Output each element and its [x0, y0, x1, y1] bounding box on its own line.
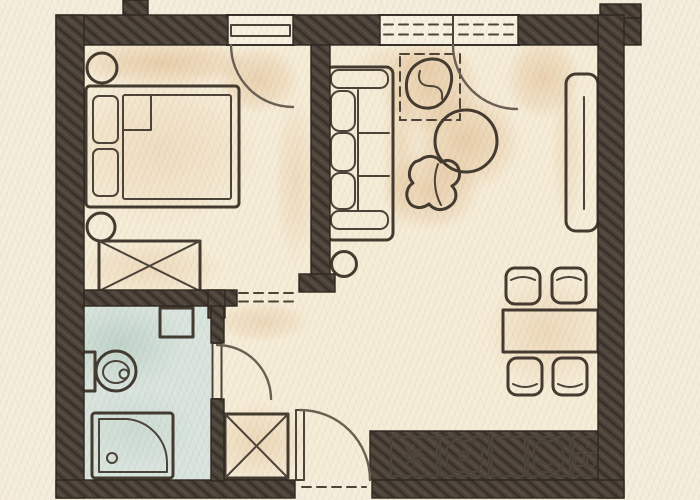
wall-foot-flange: [299, 274, 335, 292]
floor-plan-sketch: [0, 0, 700, 500]
bathroom-east-wall-upper: [211, 306, 224, 343]
bedroom-living-wall: [311, 45, 330, 278]
window-band: [379, 15, 519, 45]
floor-plan-canvas: [0, 0, 700, 500]
balcony-door-opening: [295, 480, 372, 498]
bedroom-door-opening: [227, 15, 294, 45]
bottom-wall-right: [372, 480, 624, 498]
cooktop-star-icon: [403, 445, 425, 467]
right-wall: [598, 15, 624, 498]
bathroom-east-wall-lower: [211, 399, 224, 481]
left-wall: [56, 15, 84, 498]
bottom-wall-left: [56, 480, 295, 498]
top-wall-mid: [293, 15, 380, 45]
kitchen: [370, 431, 598, 480]
wall-stub-top: [123, 0, 148, 16]
